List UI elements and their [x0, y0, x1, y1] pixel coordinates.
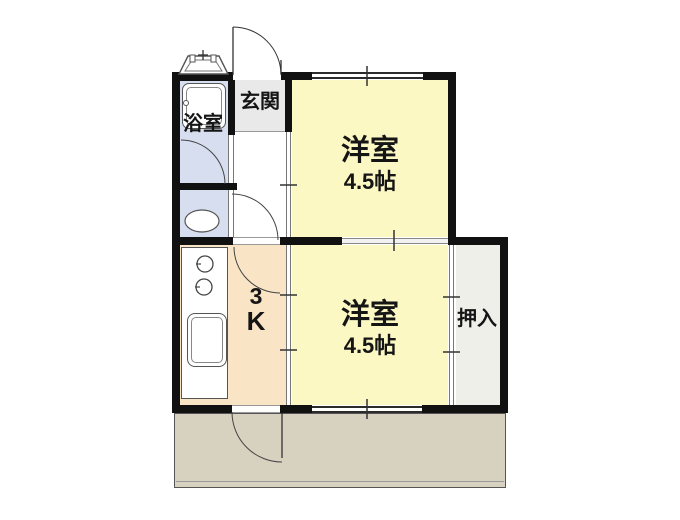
wall-closet-top — [448, 237, 508, 245]
water-heater-notch-left — [190, 55, 195, 62]
western-room-bottom-size: 4.5帖 — [292, 334, 448, 357]
water-heater-inner — [185, 60, 222, 71]
bathroom-label: 浴室 — [174, 114, 232, 135]
opening-balcony-door — [232, 405, 280, 413]
floorplan-canvas: 浴室 玄関 洋室 4.5帖 洋室 4.5帖 3 K 押入 — [0, 0, 680, 520]
opening-hall-kitchen — [233, 237, 280, 245]
toilet-floor — [180, 190, 228, 237]
partition-hall-room — [286, 132, 291, 237]
western-room-bottom-label: 洋室 — [292, 300, 448, 330]
wall-bottom-kitchen — [172, 405, 232, 413]
closet-label: 押入 — [450, 309, 504, 330]
entrance-step-line — [235, 131, 285, 132]
partition-toilet-door — [228, 190, 234, 240]
window-top — [312, 72, 423, 79]
wall-mid-left — [172, 237, 233, 245]
wall-bottom-right — [422, 405, 508, 413]
wall-top-bathroom — [172, 72, 233, 81]
entrance-door-arc — [233, 27, 281, 75]
kitchen-label-line1: 3 — [240, 284, 272, 308]
western-room-top-label: 洋室 — [292, 136, 448, 166]
toilet-door-arc — [232, 194, 278, 240]
wall-right-top-room — [448, 72, 456, 245]
water-heater-notch-right — [211, 55, 216, 62]
balcony-floor — [174, 413, 506, 488]
sliding-door-room-divider — [342, 238, 448, 244]
window-bottom — [312, 406, 422, 413]
wall-top-room-left — [281, 72, 312, 80]
balcony-railing-line — [176, 481, 504, 482]
kitchen-sink — [187, 313, 227, 367]
kitchen-sink-inner — [191, 317, 223, 363]
wall-room-divider-left — [280, 237, 342, 245]
entrance-label: 玄関 — [233, 92, 287, 113]
kitchen-label-line2: K — [240, 308, 272, 335]
western-room-top-size: 4.5帖 — [292, 170, 448, 193]
partition-bath-door — [228, 135, 234, 183]
wall-bath-toilet-divider — [172, 183, 237, 190]
partition-kitchen-room — [286, 245, 291, 405]
wall-bottom-mid — [280, 405, 312, 413]
